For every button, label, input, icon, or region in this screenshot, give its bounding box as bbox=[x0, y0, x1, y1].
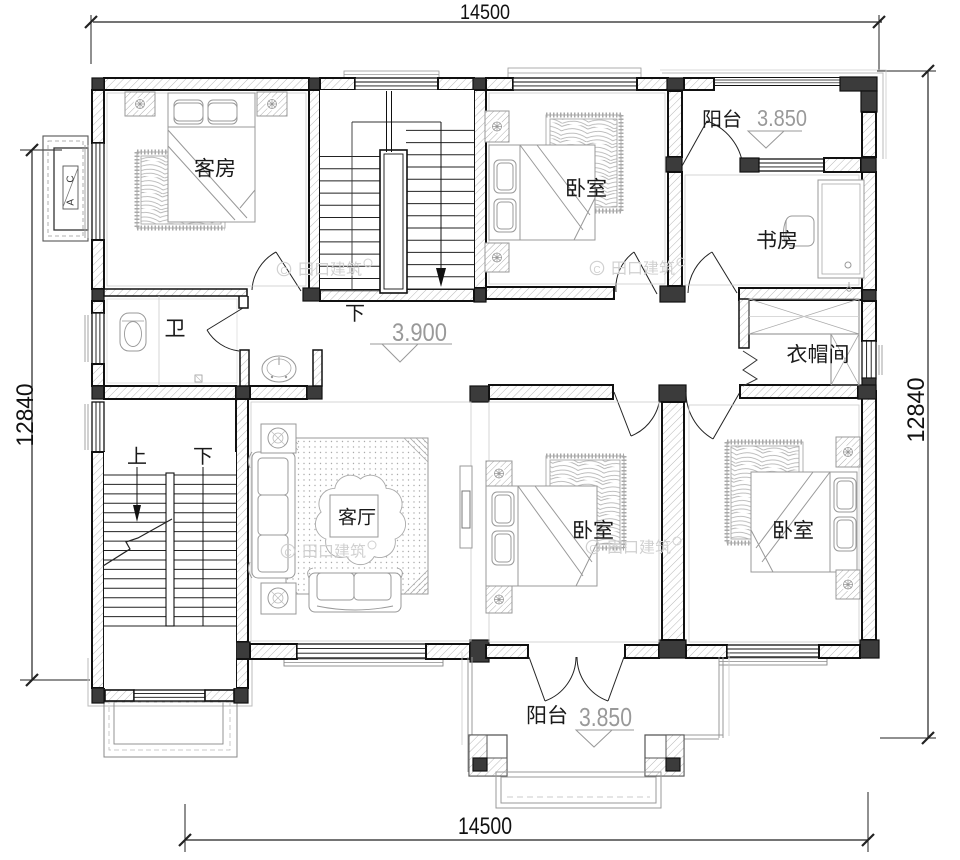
svg-text:C: C bbox=[593, 265, 600, 276]
svg-text:14500: 14500 bbox=[458, 813, 512, 840]
svg-text:3.850: 3.850 bbox=[579, 702, 632, 732]
svg-text:3.850: 3.850 bbox=[757, 105, 807, 131]
svg-text:A C: A C bbox=[66, 168, 77, 205]
svg-text:3.900: 3.900 bbox=[392, 319, 447, 347]
svg-text:12840: 12840 bbox=[903, 378, 930, 443]
svg-text:12840: 12840 bbox=[12, 384, 39, 447]
svg-text:14500: 14500 bbox=[460, 1, 510, 24]
svg-text:C: C bbox=[284, 548, 291, 559]
svg-text:C: C bbox=[280, 266, 287, 277]
svg-text:C: C bbox=[589, 544, 596, 555]
